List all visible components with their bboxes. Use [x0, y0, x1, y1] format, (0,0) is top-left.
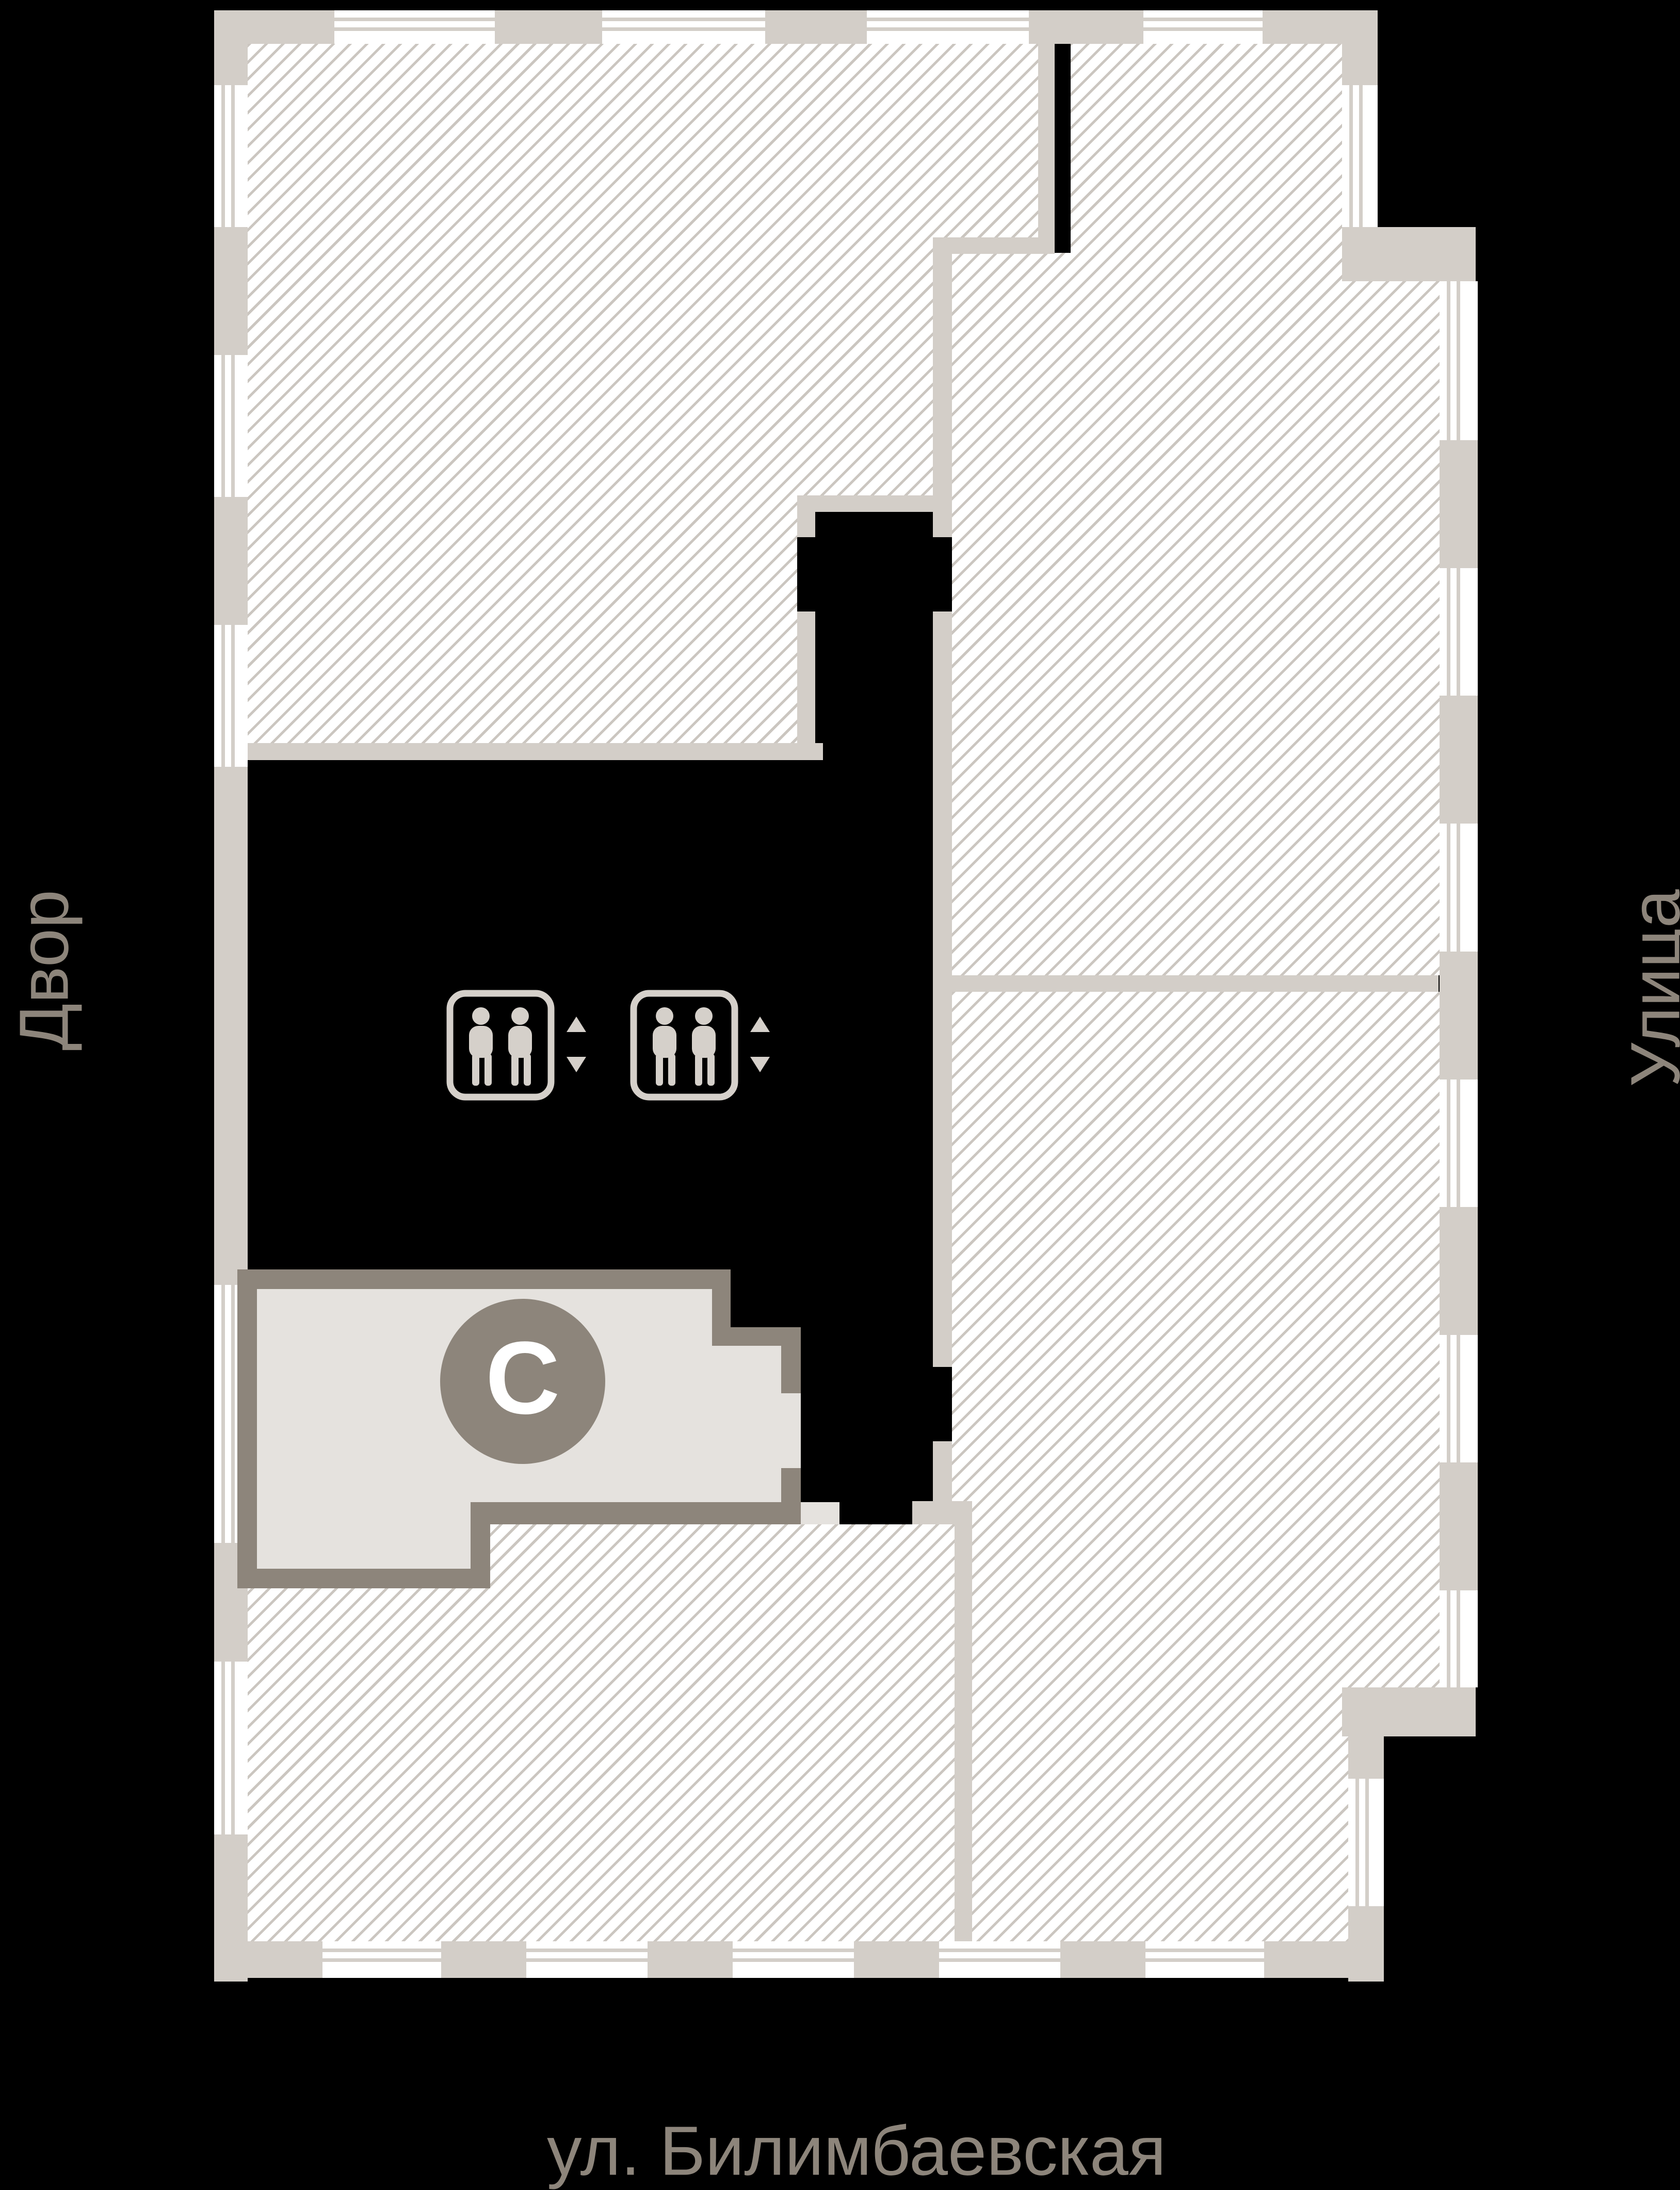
- exterior-pier: [214, 497, 248, 625]
- wall-segment: [797, 512, 815, 537]
- window-segment: [214, 85, 248, 227]
- window-segment: [1440, 568, 1478, 696]
- exterior-pier: [1440, 696, 1478, 824]
- exterior-pier: [1440, 952, 1478, 1080]
- elevator-icon: [446, 990, 591, 1101]
- wall-segment: [1342, 227, 1476, 281]
- wall-segment: [1342, 1687, 1476, 1736]
- stairwell-wall: [781, 1468, 801, 1504]
- window-segment: [1143, 10, 1263, 44]
- window-segment: [322, 1941, 441, 1978]
- wall-segment: [1038, 44, 1055, 237]
- wall-segment: [952, 975, 1439, 992]
- window-segment: [214, 355, 248, 497]
- window-segment: [1440, 1080, 1478, 1207]
- exterior-pier: [495, 10, 602, 44]
- stairs-letter: С: [486, 1327, 560, 1430]
- window-segment: [526, 1941, 648, 1978]
- window-segment: [1440, 281, 1478, 440]
- exterior-pier: [214, 1941, 322, 1978]
- exterior-pier: [1348, 1736, 1384, 1779]
- window-segment: [867, 10, 1029, 44]
- exterior-pier: [441, 1941, 526, 1978]
- exterior-pier: [214, 767, 248, 1285]
- window-segment: [602, 10, 765, 44]
- exterior-pier: [854, 1941, 939, 1978]
- arrow-up-icon: [567, 1017, 586, 1032]
- exterior-pier: [1342, 10, 1378, 85]
- wall-segment: [933, 1441, 952, 1501]
- window-segment: [1440, 1335, 1478, 1462]
- stairwell-wall: [237, 1569, 490, 1588]
- label-street-name: ул. Билимбаевская: [547, 2116, 1166, 2186]
- exterior-pier: [1060, 1941, 1145, 1978]
- exterior-pier: [765, 10, 867, 44]
- wall-segment: [912, 1501, 972, 1524]
- arrow-down-icon: [567, 1057, 586, 1072]
- window-segment: [1348, 1779, 1384, 1906]
- stairwell-wall: [490, 1502, 801, 1524]
- label-courtyard: Двор: [9, 890, 79, 1051]
- label-street-side: Улица: [1621, 889, 1680, 1087]
- stairwell-wall: [237, 1269, 731, 1289]
- exterior-pier: [1264, 1941, 1384, 1978]
- window-segment: [1440, 1590, 1478, 1687]
- floor-plan-page: { "labels": { "left": "Двор", "right": "…: [0, 0, 1680, 2187]
- wall-segment: [955, 1524, 972, 1945]
- exterior-pier: [214, 227, 248, 355]
- window-segment: [214, 625, 248, 767]
- window-segment: [1342, 85, 1378, 227]
- elevator-cab-icon: [630, 990, 738, 1101]
- exterior-pier: [1440, 1462, 1478, 1590]
- wall-segment: [933, 254, 952, 537]
- stairwell-wall: [712, 1327, 801, 1346]
- wall-segment: [933, 611, 952, 1367]
- apartment-area-top-left: [248, 44, 1038, 743]
- window-segment: [1145, 1941, 1264, 1978]
- wall-segment: [215, 743, 823, 760]
- exterior-pier: [214, 10, 334, 44]
- elevator-cab-icon: [446, 990, 555, 1101]
- arrow-down-icon: [750, 1057, 770, 1072]
- exterior-pier: [1029, 10, 1143, 44]
- wall-segment: [797, 611, 815, 743]
- window-segment: [1440, 824, 1478, 952]
- arrow-up-icon: [750, 1017, 770, 1032]
- stairwell-landing: [801, 1502, 839, 1524]
- window-segment: [733, 1941, 854, 1978]
- wall-segment: [797, 495, 951, 512]
- exterior-pier: [648, 1941, 733, 1978]
- window-segment: [939, 1941, 1060, 1978]
- stairwell-wall: [781, 1346, 801, 1393]
- wall-segment: [933, 237, 1055, 254]
- window-segment: [334, 10, 495, 44]
- stairwell-wall: [237, 1269, 257, 1588]
- floor-plan: [0, 0, 1680, 2187]
- exterior-pier: [1440, 1207, 1478, 1335]
- exterior-pier: [1440, 440, 1478, 568]
- elevator-icon: [630, 990, 774, 1101]
- stairs-badge: С: [440, 1299, 605, 1464]
- window-segment: [214, 1662, 248, 1834]
